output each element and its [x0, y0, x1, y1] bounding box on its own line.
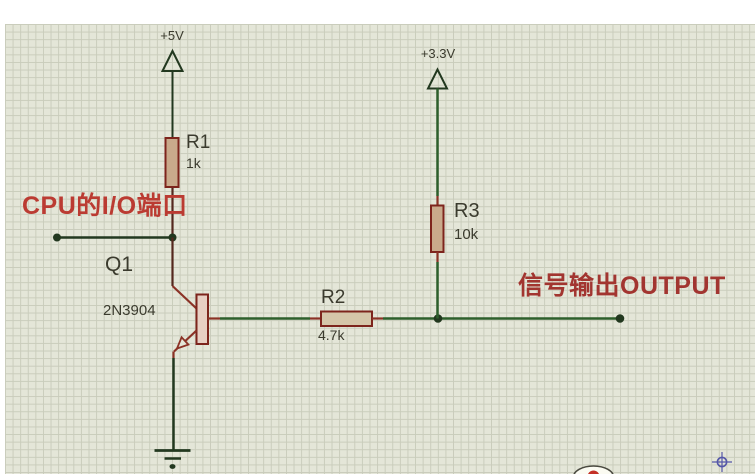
power-label-5v[interactable]: +5V [160, 29, 184, 42]
resistor-r2[interactable] [310, 312, 383, 327]
output-terminal-dot [616, 314, 625, 323]
schematic-drawing [0, 0, 755, 474]
wire-cpu-io[interactable] [53, 234, 177, 242]
resistor-r2-ref[interactable]: R2 [321, 288, 345, 307]
r1-body[interactable] [166, 138, 179, 187]
schematic-canvas: +5V R1 1k CPU的I/O端口 Q1 2N3904 R2 4.7k +3… [0, 0, 755, 474]
watermark-logo-icon [574, 466, 614, 474]
resistor-r3[interactable] [431, 196, 444, 319]
ground-dot [170, 464, 176, 469]
power-symbol-3v3[interactable] [428, 70, 447, 197]
wire-output[interactable] [383, 314, 624, 323]
resistor-r1[interactable] [166, 138, 179, 237]
cpu-io-terminal-dot [53, 234, 61, 242]
power-label-3v3[interactable]: +3.3V [421, 47, 455, 60]
resistor-r3-ref[interactable]: R3 [454, 201, 480, 221]
transistor-q1-ref[interactable]: Q1 [105, 254, 133, 275]
transistor-q1-part[interactable]: 2N3904 [103, 303, 156, 318]
r2-body[interactable] [321, 312, 372, 327]
resistor-r2-value[interactable]: 4.7k [318, 328, 344, 342]
r3-body[interactable] [431, 206, 444, 253]
ground-symbol[interactable] [155, 451, 191, 469]
power-arrow-icon-3v3 [428, 70, 447, 89]
resistor-r3-value[interactable]: 10k [454, 227, 478, 242]
annotation-cpu-io[interactable]: CPU的I/O端口 [22, 194, 188, 219]
power-symbol-5v[interactable] [163, 51, 183, 139]
resistor-r1-value[interactable]: 1k [186, 156, 201, 170]
transistor-q1[interactable] [173, 238, 221, 352]
q1-collector-diagonal [173, 286, 198, 309]
resistor-r1-ref[interactable]: R1 [186, 133, 210, 152]
q1-base-bar[interactable] [197, 295, 209, 345]
power-arrow-icon [163, 51, 183, 71]
origin-marker-icon [712, 452, 732, 472]
annotation-signal-output[interactable]: 信号输出OUTPUT [518, 274, 726, 299]
